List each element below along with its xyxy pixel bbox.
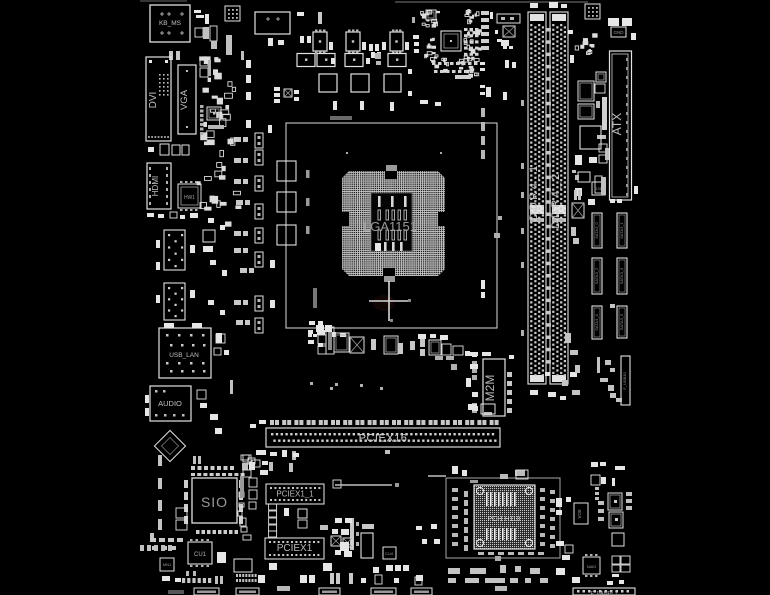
svg-text:ATX: ATX	[610, 113, 624, 135]
svg-text:VO8: VO8	[577, 509, 582, 519]
svg-text:SATA3_0: SATA3_0	[594, 221, 599, 238]
svg-text:PCIEX16: PCIEX16	[359, 433, 408, 445]
svg-text:SIO: SIO	[201, 494, 228, 510]
svg-text:PCIEX1: PCIEX1	[277, 543, 313, 554]
svg-text:F_USB30: F_USB30	[622, 372, 627, 390]
svg-text:LGA1151: LGA1151	[363, 219, 417, 234]
svg-text:AUDIO: AUDIO	[158, 399, 182, 408]
svg-text:SATA3_1: SATA3_1	[619, 221, 624, 238]
svg-text:M2M: M2M	[483, 375, 497, 402]
svg-text:SATA3_2: SATA3_2	[594, 267, 599, 284]
svg-text:HDMI: HDMI	[151, 176, 160, 196]
svg-text:SATA3_5: SATA3_5	[619, 313, 624, 330]
svg-text:SATA3_4: SATA3_4	[594, 313, 599, 330]
svg-text:DDR4_1: DDR4_1	[528, 163, 540, 220]
svg-text:CU1: CU1	[194, 552, 207, 558]
svg-text:PCIEX1_1: PCIEX1_1	[276, 490, 314, 499]
svg-text:CU4: CU4	[385, 551, 394, 556]
svg-text:GND: GND	[614, 30, 625, 35]
svg-text:PCH H110: PCH H110	[488, 516, 521, 523]
svg-text:HW1: HW1	[184, 195, 195, 201]
svg-text:SATA3_3: SATA3_3	[619, 267, 624, 284]
svg-text:USB_LAN: USB_LAN	[169, 352, 199, 359]
svg-text:DDR4_2: DDR4_2	[550, 171, 562, 228]
svg-text:DVI: DVI	[148, 92, 159, 109]
svg-text:F_PANEL1: F_PANEL1	[590, 591, 617, 595]
svg-text:KB_MS: KB_MS	[159, 20, 182, 27]
svg-text:NAID: NAID	[587, 564, 597, 569]
svg-text:MN1: MN1	[163, 562, 172, 567]
svg-text:VGA: VGA	[179, 89, 190, 110]
